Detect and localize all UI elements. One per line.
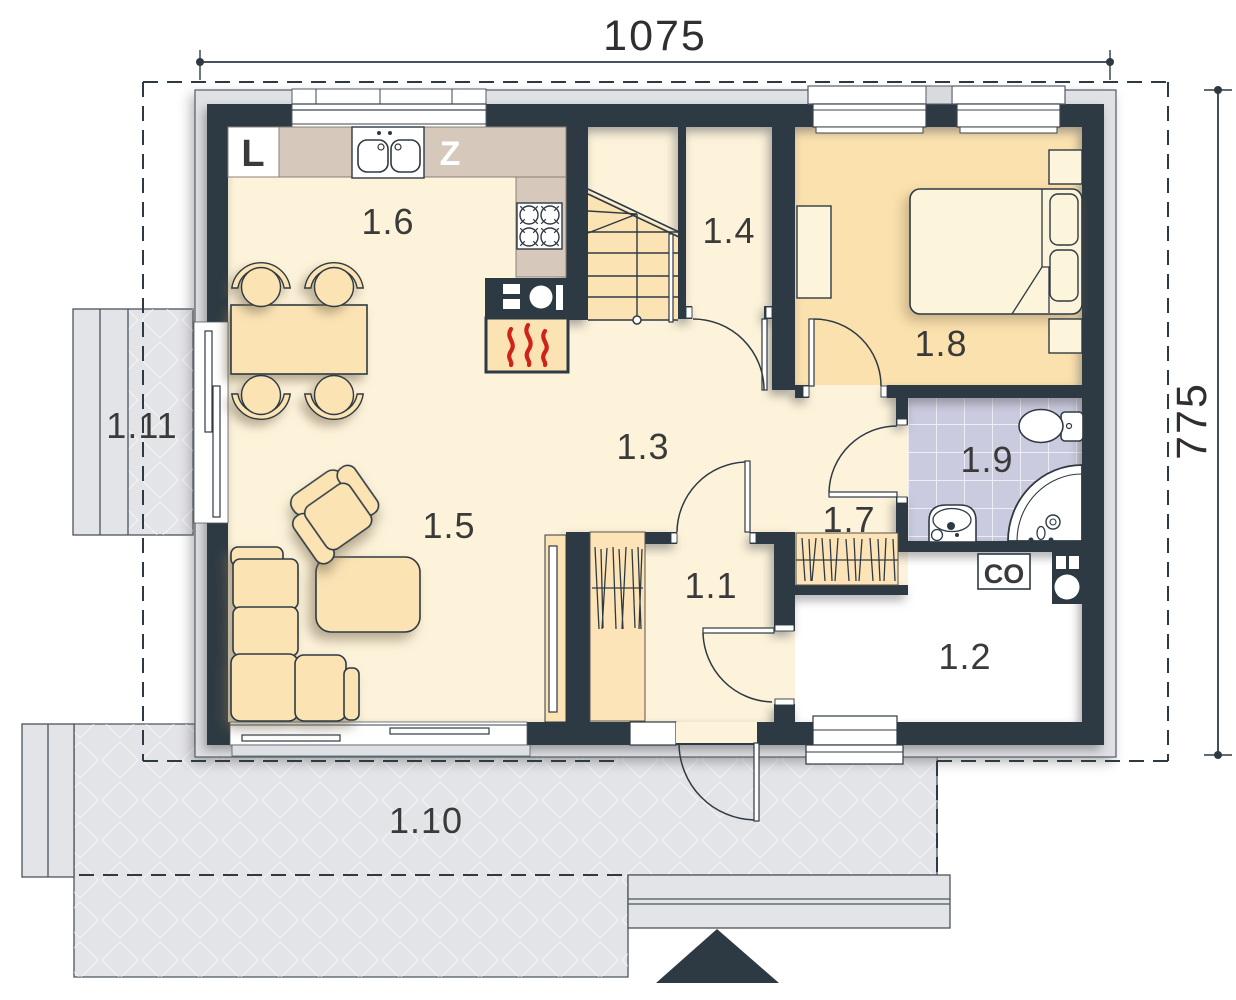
svg-text:1.4: 1.4 [702, 210, 755, 251]
svg-text:1.3: 1.3 [616, 426, 669, 467]
svg-text:CO: CO [984, 559, 1025, 589]
svg-text:1.6: 1.6 [361, 201, 414, 242]
svg-text:1.7: 1.7 [822, 499, 875, 540]
svg-text:1.10: 1.10 [389, 800, 463, 841]
svg-text:1.1: 1.1 [684, 565, 737, 606]
svg-text:1.8: 1.8 [914, 323, 967, 364]
svg-text:L: L [241, 133, 264, 175]
svg-text:1.9: 1.9 [960, 439, 1013, 480]
svg-text:1.5: 1.5 [422, 505, 475, 546]
svg-text:775: 775 [1168, 382, 1216, 460]
svg-text:Z: Z [440, 135, 461, 173]
svg-text:1075: 1075 [603, 12, 707, 60]
svg-text:1.11: 1.11 [106, 405, 177, 446]
svg-text:1.2: 1.2 [938, 636, 991, 677]
